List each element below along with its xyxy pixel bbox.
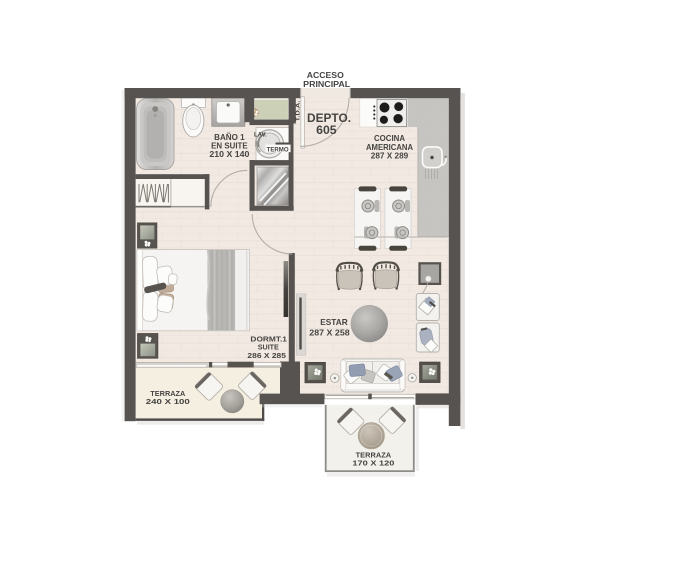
svg-text:287 X 258: 287 X 258 xyxy=(309,329,350,338)
svg-text:240 X 100: 240 X 100 xyxy=(146,397,190,406)
svg-text:LAV.: LAV. xyxy=(254,131,267,138)
svg-text:287 X 289: 287 X 289 xyxy=(371,151,409,161)
svg-text:170 X 120: 170 X 120 xyxy=(352,459,394,468)
svg-text:PRINCIPAL: PRINCIPAL xyxy=(303,80,350,89)
svg-text:605: 605 xyxy=(316,123,337,137)
svg-text:TERMO: TERMO xyxy=(267,146,289,153)
svg-text:T.D.A.: T.D.A. xyxy=(295,100,301,121)
svg-text:210 X 140: 210 X 140 xyxy=(209,150,250,159)
svg-text:ESTAR: ESTAR xyxy=(320,318,348,327)
svg-text:286 X 285: 286 X 285 xyxy=(247,351,286,360)
svg-text:ACCESO: ACCESO xyxy=(307,71,344,80)
